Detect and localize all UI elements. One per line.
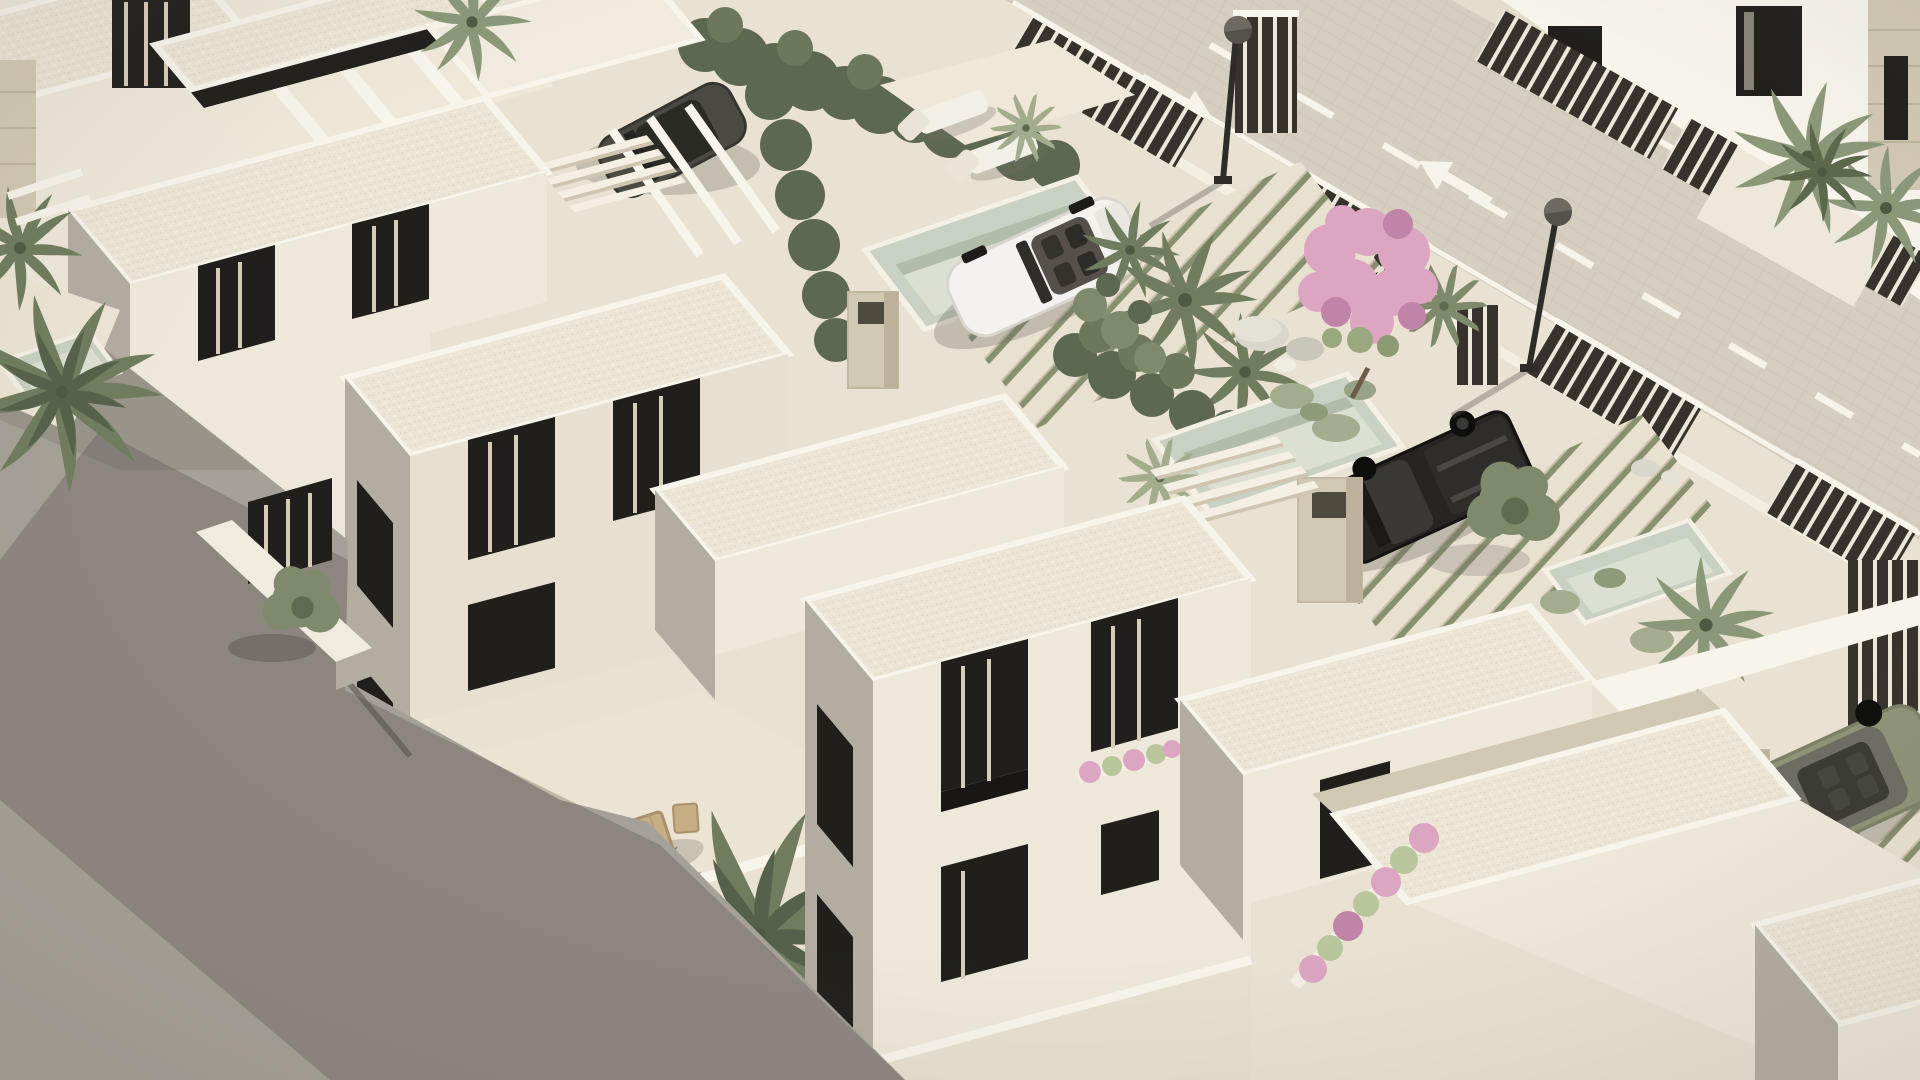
architectural-render: [0, 0, 1920, 1080]
vignette: [0, 0, 1920, 1080]
